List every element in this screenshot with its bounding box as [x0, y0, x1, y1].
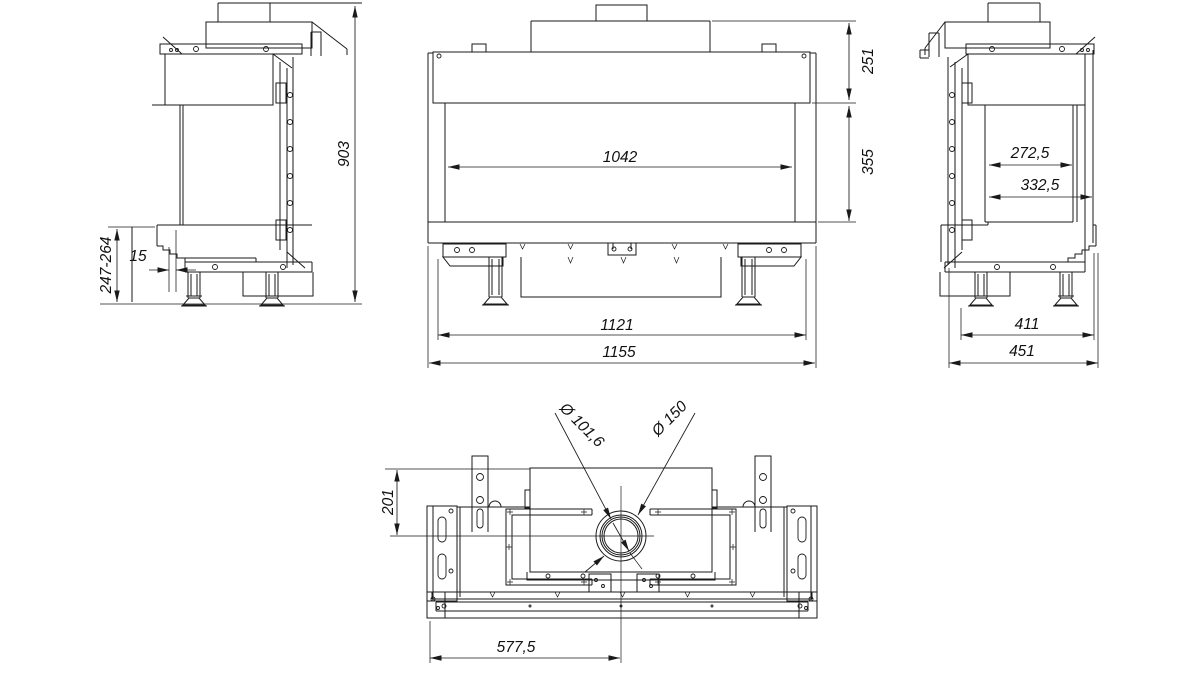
dim-depth-base-label: 411	[1015, 316, 1040, 333]
top-view: 201 Ø 101,6 Ø 150 577,5	[380, 398, 817, 663]
top-outline	[427, 456, 817, 618]
front-view: 1042 251 355 1121 1155	[428, 5, 877, 368]
dim-inner-width: 1121	[438, 259, 806, 340]
dim-base-height-label: 247-264	[98, 236, 115, 294]
side-view-right: 272,5 332,5 411 451	[920, 3, 1098, 368]
side-left-screws	[170, 47, 293, 270]
drawing-svg: 903 247-264 15	[0, 0, 1200, 674]
dim-flue-inner-diameter: Ø 101,6	[555, 399, 642, 569]
dim-depth-inner: 272,5	[989, 145, 1072, 165]
dim-overall-width-label: 1155	[602, 344, 636, 361]
flue-collar	[390, 486, 654, 663]
dim-overall-height: 903	[336, 6, 355, 302]
dim-glass-width-label: 1042	[603, 149, 638, 166]
dim-flue-inner-diameter-label: Ø 101,6	[555, 399, 607, 451]
dim-flue-offset-y: 201	[380, 469, 530, 535]
dim-flue-outer-diameter-label: Ø 150	[648, 398, 691, 441]
dim-depth-glass-label: 332,5	[1021, 177, 1060, 194]
dim-glass-height: 355	[818, 106, 877, 222]
dim-depth-overall: 451	[949, 253, 1098, 368]
dim-glass-width: 1042	[448, 149, 792, 167]
dim-overall-height-label: 903	[336, 141, 353, 167]
dim-depth-overall-label: 451	[1009, 343, 1035, 360]
dim-overall-width: 1155	[428, 246, 816, 368]
dim-glass-height-label: 355	[860, 149, 877, 175]
dim-inner-width-label: 1121	[600, 317, 633, 334]
dim-top-height: 251	[712, 21, 877, 103]
dim-flue-offset-x: 577,5	[430, 621, 620, 663]
fireplace-technical-drawing: 903 247-264 15	[0, 0, 1200, 674]
dim-top-height-label: 251	[860, 48, 877, 75]
dim-depth-inner-label: 272,5	[1010, 145, 1050, 162]
dim-glass-inset: 15	[129, 230, 196, 292]
dim-flue-offset-y-label: 201	[380, 489, 397, 516]
dim-flue-offset-x-label: 577,5	[497, 639, 536, 656]
side-right-outline	[920, 3, 1096, 306]
side-view-left: 903 247-264 15	[98, 3, 362, 306]
dim-glass-inset-label: 15	[129, 248, 147, 265]
